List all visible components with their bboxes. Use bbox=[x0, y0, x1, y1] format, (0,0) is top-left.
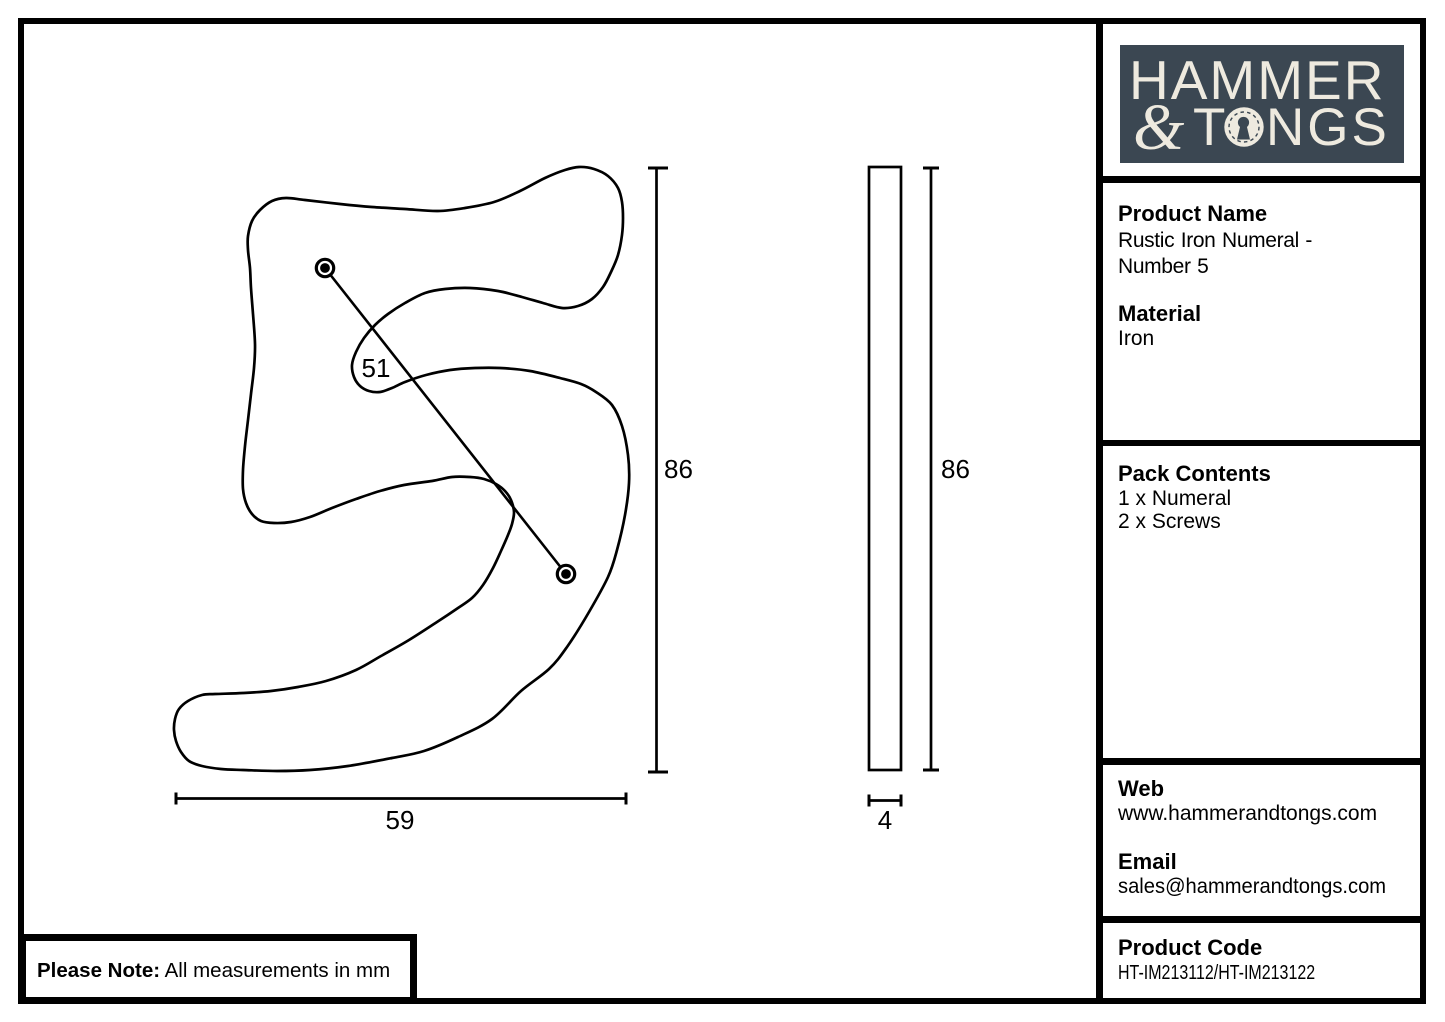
svg-text:86: 86 bbox=[664, 454, 693, 484]
svg-text:4: 4 bbox=[878, 805, 892, 835]
svg-text:59: 59 bbox=[386, 805, 415, 835]
svg-text:NGS: NGS bbox=[1266, 98, 1390, 156]
svg-text:51: 51 bbox=[362, 353, 391, 383]
svg-text:T: T bbox=[1193, 98, 1225, 156]
svg-text:86: 86 bbox=[941, 454, 970, 484]
svg-text:&: & bbox=[1133, 94, 1185, 156]
